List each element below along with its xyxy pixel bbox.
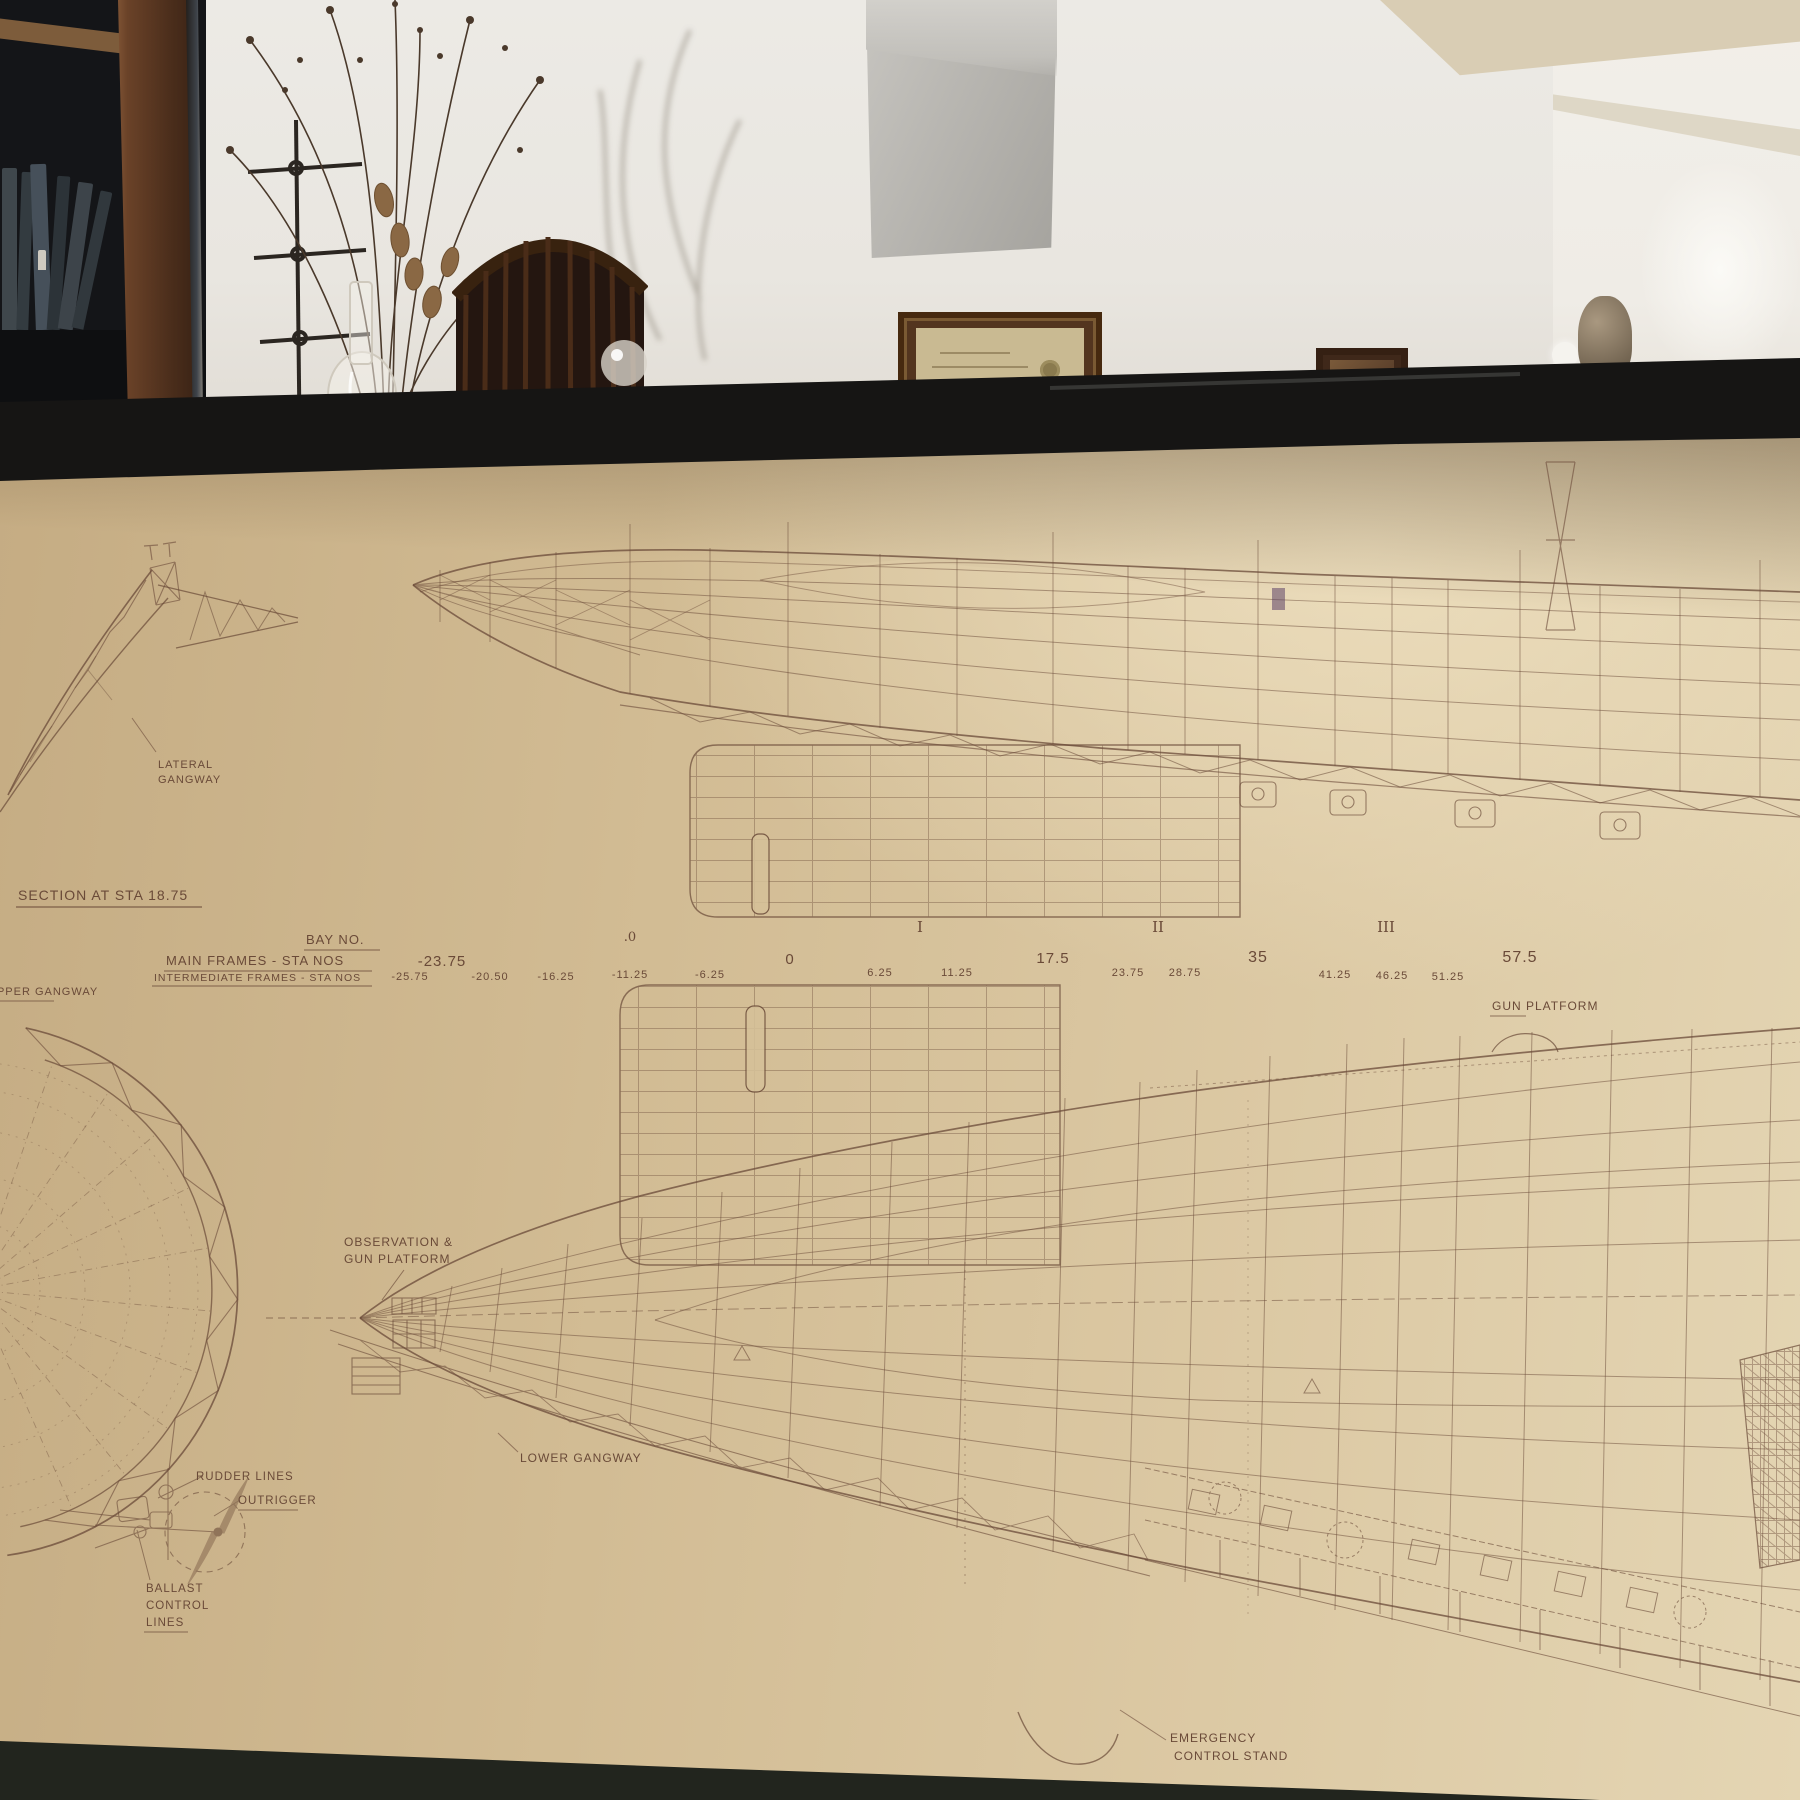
walkway-dotted-line — [1150, 1042, 1800, 1088]
section-title: SECTION AT STA 18.75 — [18, 887, 188, 903]
tail-structure-block — [1740, 1345, 1800, 1568]
main-station-label: 57.5 — [1502, 949, 1537, 966]
intermediate-station-label: 28.75 — [1169, 967, 1202, 979]
bay-label: .0 — [624, 930, 636, 945]
nose-observation-platform — [266, 1270, 436, 1394]
intermediate-station-label: -20.50 — [471, 971, 508, 983]
intermediate-frames-header: INTERMEDIATE FRAMES - STA NOS — [154, 972, 361, 984]
plan-view-drawing — [266, 985, 1800, 1764]
bay-no-header: BAY NO. — [306, 932, 365, 947]
outrigger-label: OUTRIGGER — [238, 1495, 317, 1507]
plan-view-fin — [620, 985, 1060, 1265]
intermediate-station-label: -25.75 — [391, 971, 428, 983]
inner-envelope-bottom — [655, 1320, 1800, 1406]
emergency-control-stand-label: EMERGENCY CONTROL STAND — [1170, 1731, 1288, 1763]
side-view-fin — [690, 745, 1240, 917]
spiral-wire-net — [0, 1062, 198, 1518]
bay-label: III — [1377, 918, 1395, 936]
bay-label: II — [1152, 918, 1164, 936]
rudder-lines-label: RUDDER LINES — [196, 1471, 294, 1483]
bay-label: I — [917, 918, 923, 936]
radial-bracing-wires — [0, 1063, 211, 1510]
lower-gangway-truss — [330, 1330, 1150, 1576]
intermediate-station-label: 41.25 — [1319, 969, 1352, 981]
upper-gangway-label: UPPER GANGWAY — [0, 986, 98, 998]
intermediate-station-label: 11.25 — [941, 967, 973, 979]
intermediate-station-label: -16.25 — [537, 971, 574, 983]
lateral-gangway-section-drawing — [0, 542, 298, 812]
main-station-label: 35 — [1248, 949, 1268, 966]
gondola-corridor — [1145, 1468, 1800, 1716]
main-frames-header: MAIN FRAMES - STA NOS — [166, 953, 344, 968]
intermediate-station-label: 46.25 — [1376, 970, 1409, 982]
intermediate-station-label: -11.25 — [612, 969, 648, 981]
ballast-control-lines-label: BALLAST CONTROL LINES — [146, 1583, 213, 1629]
intermediate-station-label: -6.25 — [695, 969, 725, 981]
side-elevation-drawing — [413, 462, 1800, 917]
emergency-stand-outline — [1018, 1712, 1118, 1764]
intermediate-station-label: 6.25 — [867, 967, 892, 979]
intermediate-station-label: 23.75 — [1112, 967, 1145, 979]
intermediate-station-label: 51.25 — [1432, 971, 1465, 983]
hull-longerons — [413, 578, 1800, 760]
ring-cross-section-drawing — [0, 1028, 248, 1584]
photo-of-framed-blueprint: LATERAL GANGWAY — [0, 0, 1800, 1800]
picture-frame-top-edge — [0, 0, 1800, 520]
main-station-label: -23.75 — [418, 953, 467, 970]
gun-platform-label: GUN PLATFORM — [1492, 999, 1598, 1013]
purple-stamp-mark — [1272, 588, 1285, 610]
main-station-label: 0 — [785, 951, 794, 968]
main-station-label: 17.5 — [1036, 950, 1069, 967]
lower-gangway-label: LOWER GANGWAY — [520, 1451, 642, 1465]
plan-longerons — [360, 1062, 1800, 1590]
observation-gun-platform-label: OBSERVATION & GUN PLATFORM — [344, 1235, 457, 1266]
lateral-gangway-label: LATERAL GANGWAY — [158, 759, 221, 786]
